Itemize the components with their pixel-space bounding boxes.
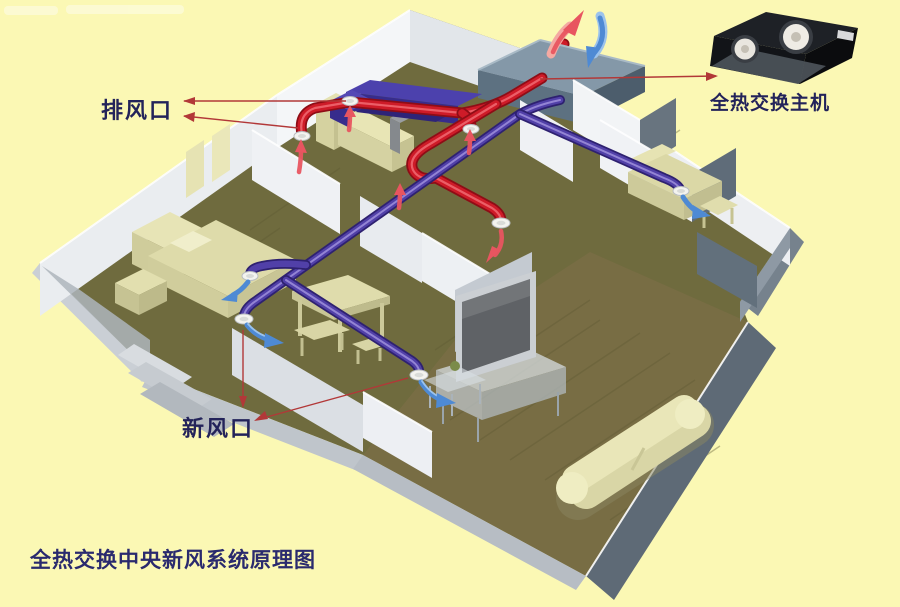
ventilation-system-diagram: 排风口 全热交换主机 新风口 全热交换中央新风系统原理图	[0, 0, 900, 607]
heat-exchanger-product-photo	[710, 12, 858, 84]
fresh-vent-right-bedroom	[673, 187, 689, 196]
fan-port-center	[779, 20, 813, 54]
fresh-vent-bedroom	[242, 272, 258, 281]
exhaust-vent-4	[492, 218, 510, 228]
fresh-vent-hall	[235, 314, 253, 324]
fresh-vent-living	[410, 370, 428, 380]
label-exhaust-vent: 排风口	[101, 93, 173, 125]
fan-port-left	[731, 35, 759, 63]
label-main-unit: 全热交换主机	[710, 88, 830, 115]
label-fresh-air-vent: 新风口	[182, 411, 254, 443]
diagram-caption: 全热交换中央新风系统原理图	[30, 544, 316, 574]
exhaust-vent-1	[294, 132, 310, 141]
watermark	[4, 5, 184, 15]
